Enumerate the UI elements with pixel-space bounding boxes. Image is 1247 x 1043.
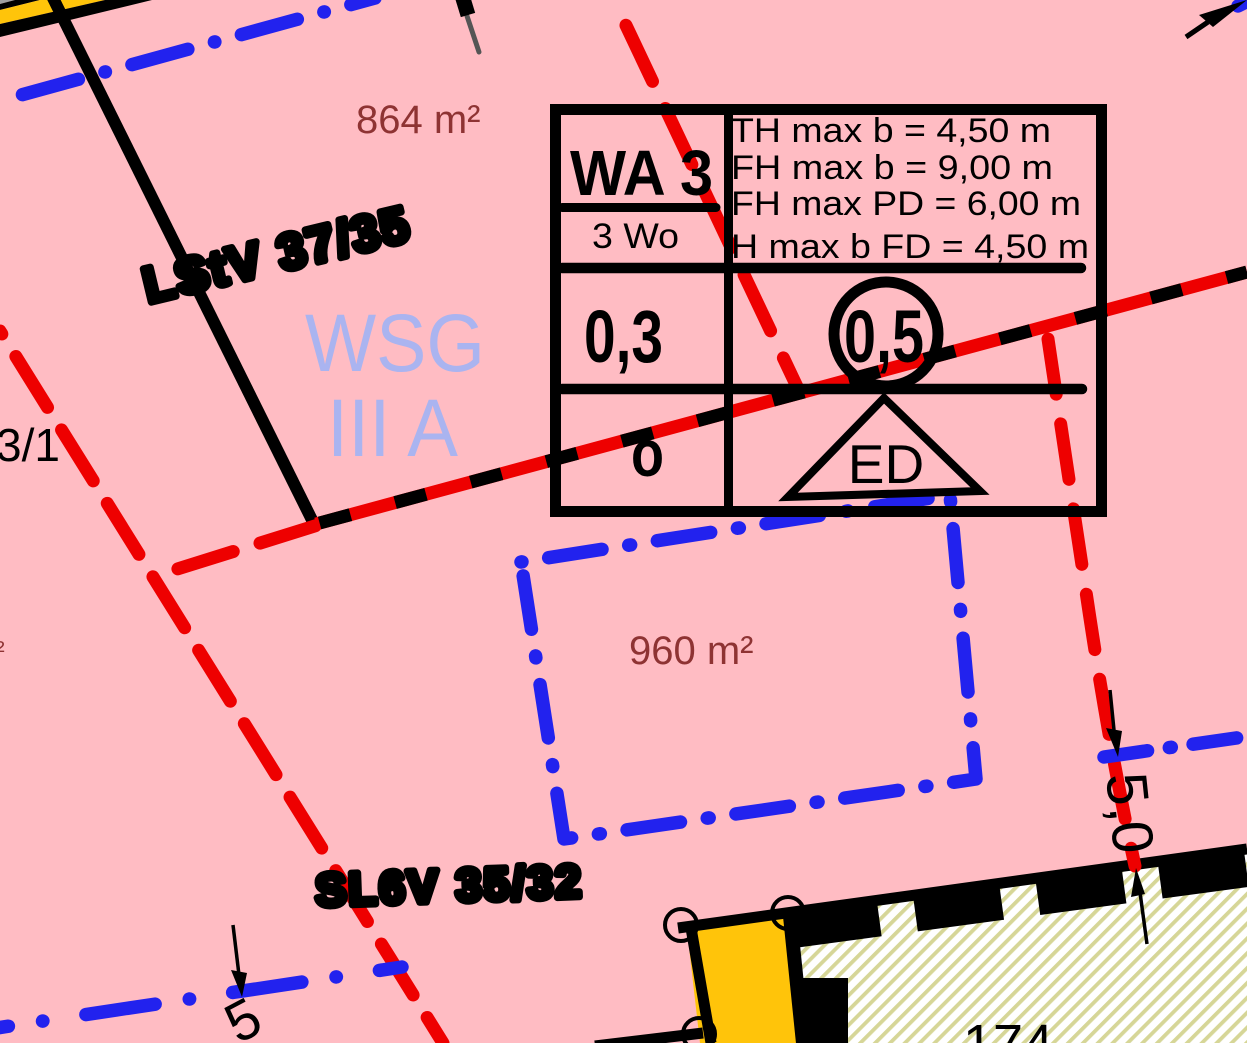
svg-text:0,3: 0,3 — [584, 295, 663, 378]
svg-text:III A: III A — [327, 383, 458, 474]
svg-text:WA 3: WA 3 — [570, 137, 713, 209]
svg-text:3/1: 3/1 — [0, 419, 60, 471]
svg-text:SL6V 35/32: SL6V 35/32 — [315, 855, 585, 916]
svg-text:TH max b = 4,50 m: TH max b = 4,50 m — [731, 112, 1051, 150]
svg-text:FH max PD = 6,00 m: FH max PD = 6,00 m — [731, 185, 1081, 223]
svg-text:5,0: 5,0 — [1093, 770, 1166, 857]
svg-text:ED: ED — [848, 433, 924, 495]
svg-text:WSG: WSG — [305, 298, 485, 389]
svg-text:864 m²: 864 m² — [356, 98, 481, 142]
svg-text:960 m²: 960 m² — [629, 629, 754, 673]
svg-text:FH max b = 9,00 m: FH max b = 9,00 m — [731, 149, 1053, 187]
svg-text:H max b FD = 4,50 m: H max b FD = 4,50 m — [731, 228, 1089, 266]
svg-text:3 Wo: 3 Wo — [592, 217, 679, 256]
svg-text:0,5: 0,5 — [844, 295, 924, 378]
svg-text:174: 174 — [963, 1014, 1053, 1043]
svg-text:o: o — [631, 416, 664, 490]
svg-text:²: ² — [0, 635, 5, 665]
